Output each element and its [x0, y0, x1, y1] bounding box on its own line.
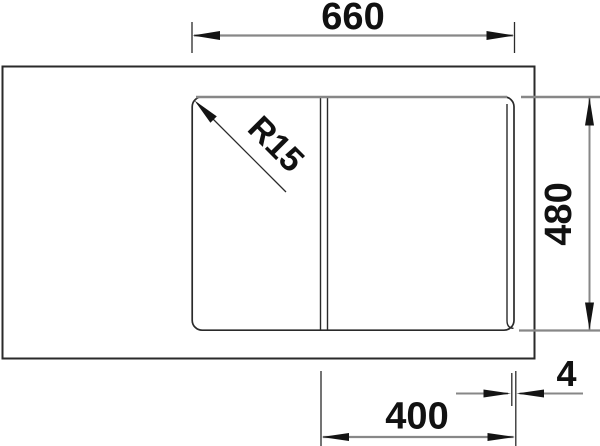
r15-label: R15 — [240, 109, 311, 180]
dim-660-arrow-left-icon — [193, 31, 221, 40]
dim-660-arrow-right-icon — [487, 31, 515, 40]
drawing-svg: 480 660 R15 400 — [0, 0, 600, 446]
dim-4-arrow-left-icon — [484, 390, 512, 398]
dim-400-arrow-right-icon — [488, 433, 516, 441]
dimension-400: 400 — [321, 371, 516, 446]
dimension-660: 660 — [192, 0, 515, 53]
dim-480-label: 480 — [538, 182, 580, 245]
radius-callout-r15: R15 — [195, 101, 312, 193]
dim-480-arrow-up-icon — [585, 98, 594, 126]
dim-660-label: 660 — [321, 0, 384, 38]
sink-bowl-outline — [192, 97, 514, 330]
dim-400-label: 400 — [385, 396, 448, 438]
dim-4-label: 4 — [556, 353, 576, 394]
dim-400-arrow-left-icon — [322, 433, 350, 441]
dimension-4: 4 — [456, 353, 583, 398]
sink-technical-drawing: 480 660 R15 400 — [0, 0, 600, 446]
dim-4-arrow-right-icon — [517, 390, 545, 398]
bowl-edge-slot-line — [507, 104, 514, 328]
dim-480-arrow-down-icon — [585, 303, 594, 331]
r15-arrow-icon — [195, 101, 217, 123]
